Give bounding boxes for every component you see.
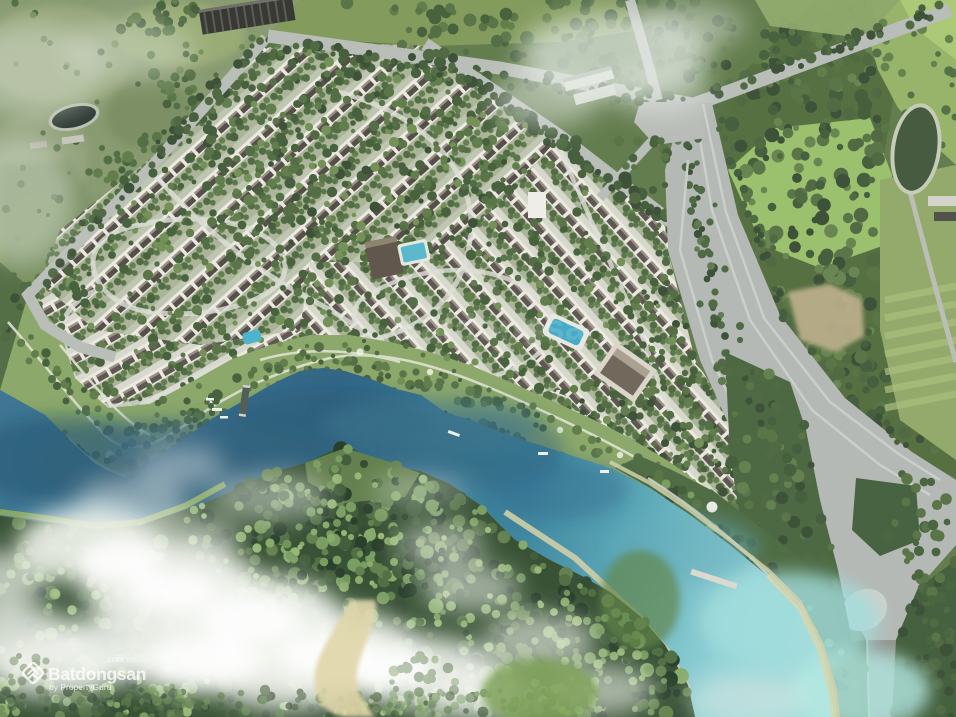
svg-text:by PropertyGuru: by PropertyGuru	[49, 682, 112, 692]
svg-text:Batdongsan: Batdongsan	[394, 307, 608, 348]
svg-text:Batdongsan: Batdongsan	[48, 664, 146, 684]
svg-text:.com.vn: .com.vn	[105, 654, 135, 664]
svg-text:.com: .com	[578, 299, 608, 315]
